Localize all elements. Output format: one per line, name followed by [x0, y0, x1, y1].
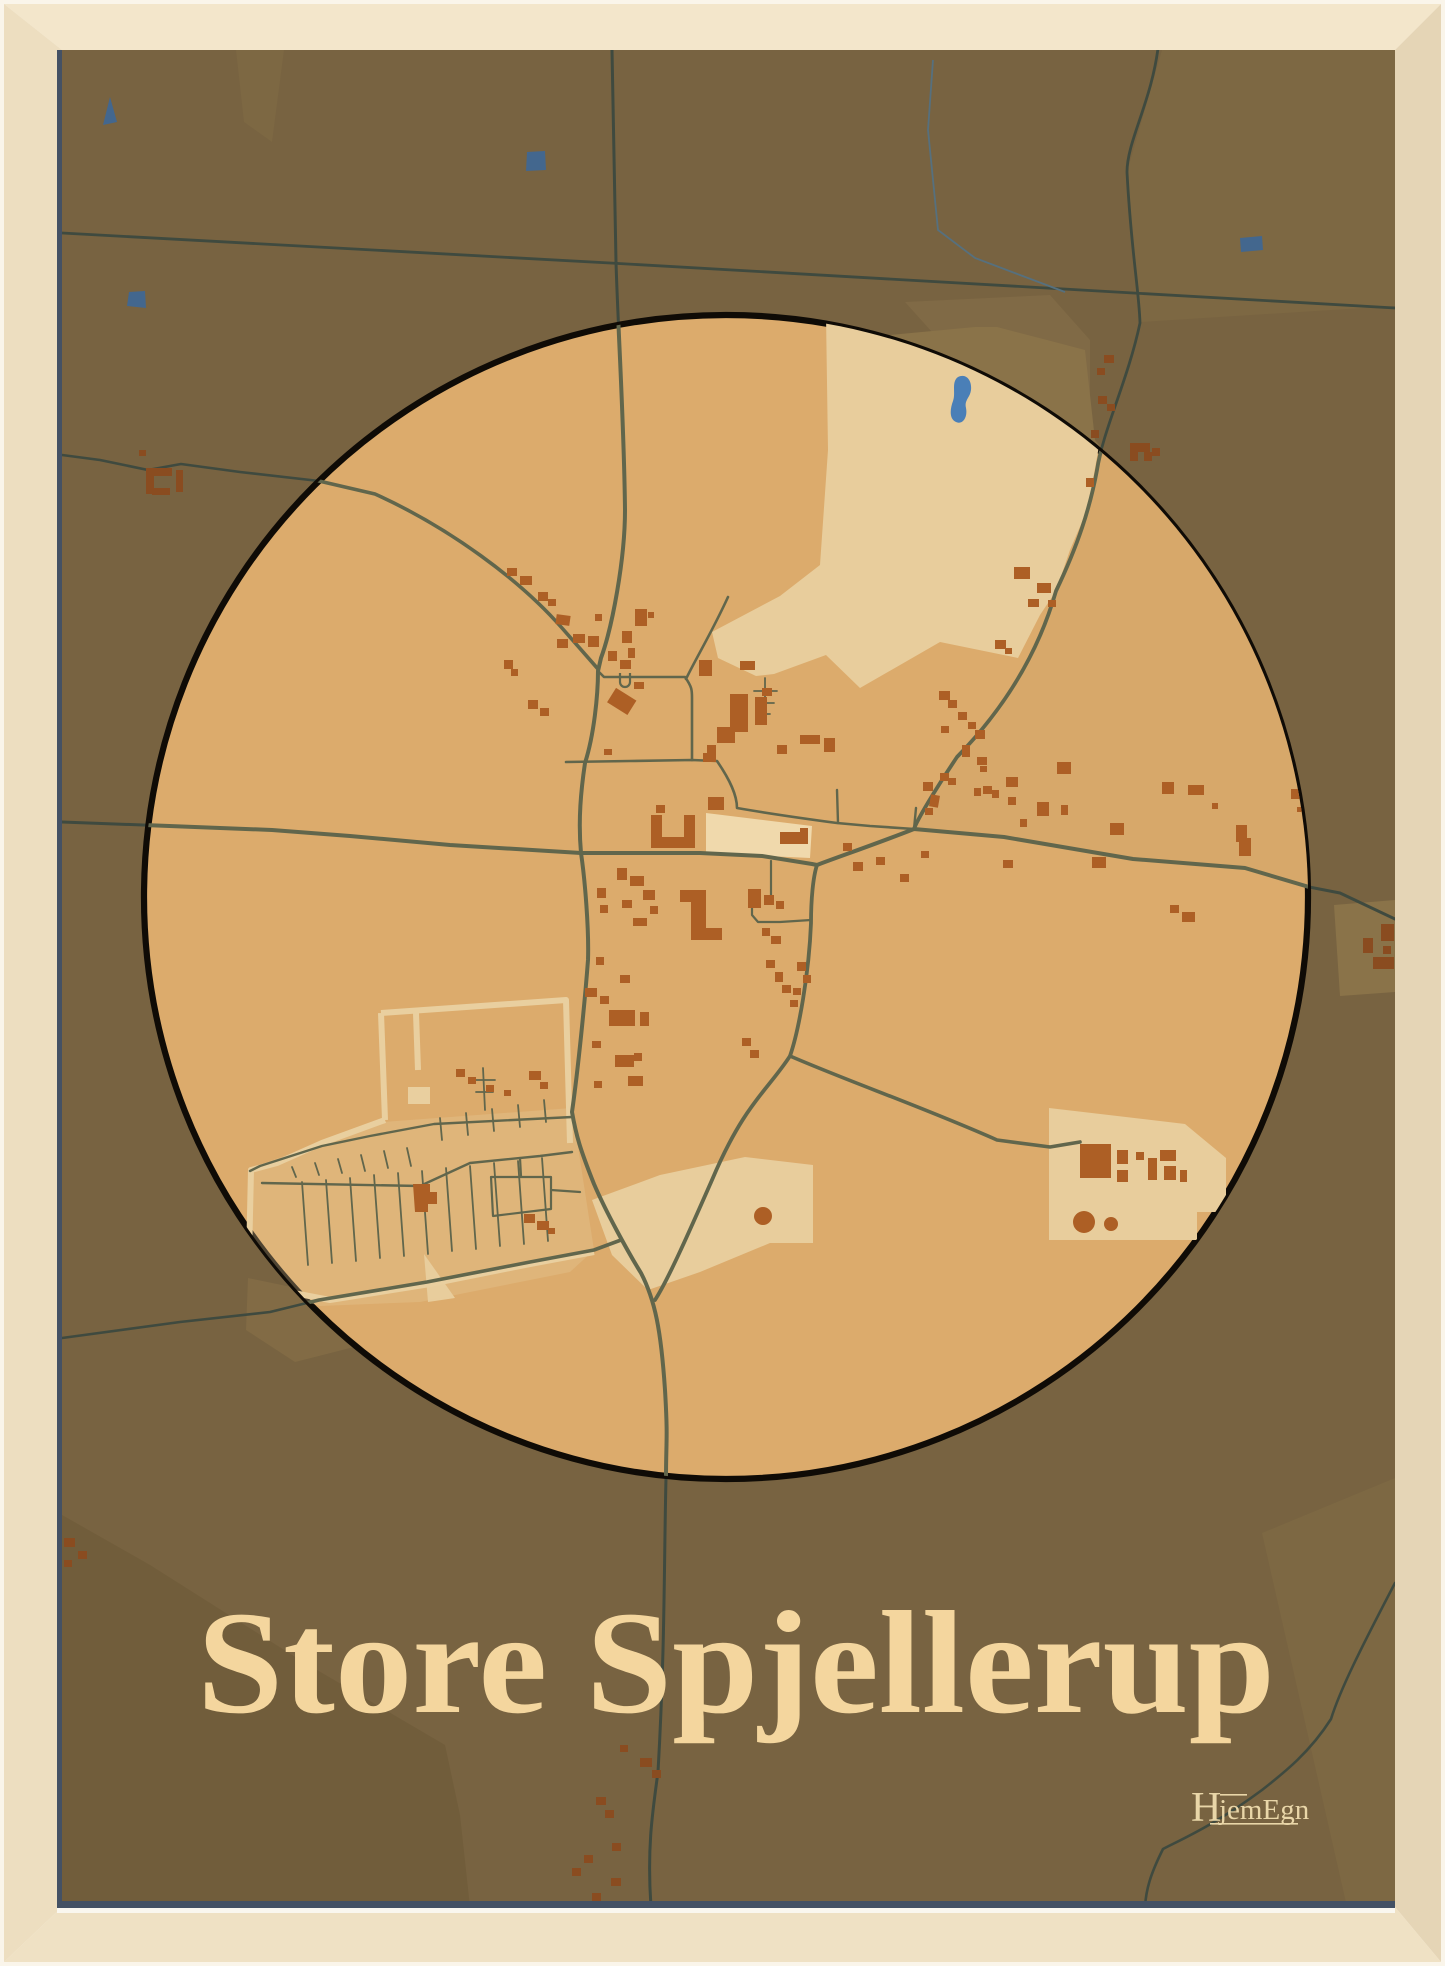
- svg-text:Store Spjellerup: Store Spjellerup: [197, 1581, 1275, 1744]
- svg-text:jemEgn: jemEgn: [1218, 1794, 1310, 1826]
